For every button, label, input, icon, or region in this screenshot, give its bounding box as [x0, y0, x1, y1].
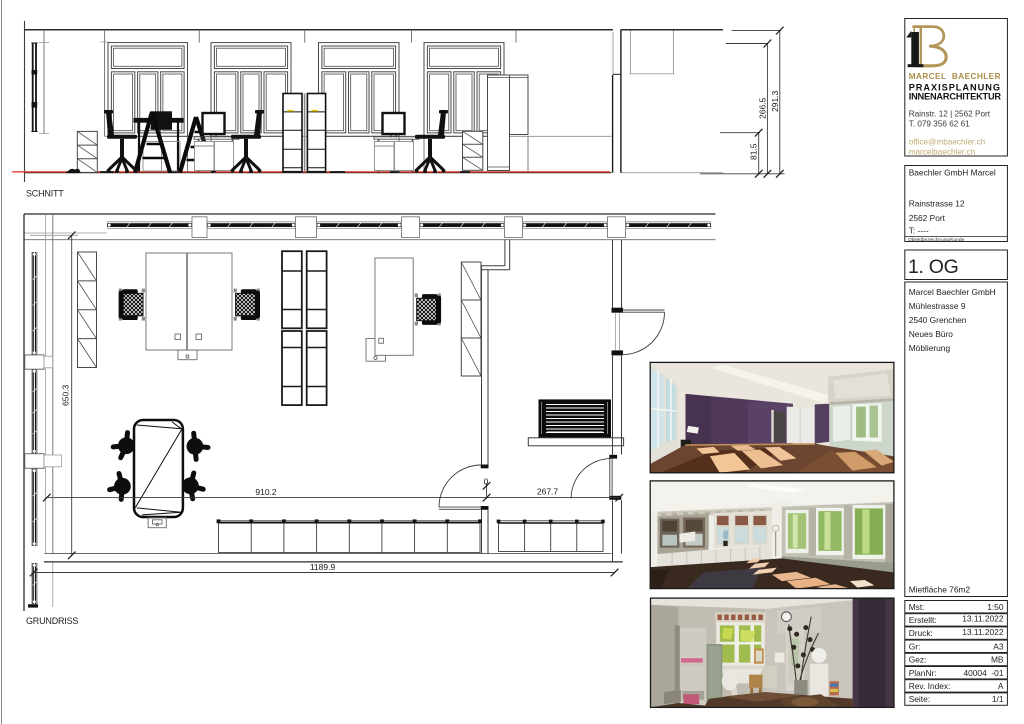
svg-text:MB: MB: [991, 655, 1004, 665]
svg-text:Rainstr. 12 | 2562 Port: Rainstr. 12 | 2562 Port: [909, 110, 991, 119]
svg-text:Objektbezeichnung/Kunde: Objektbezeichnung/Kunde: [908, 237, 965, 243]
svg-text:A: A: [998, 681, 1004, 691]
svg-text:910.2: 910.2: [255, 487, 277, 497]
svg-text:2562 Port: 2562 Port: [909, 213, 946, 223]
svg-text:13.11.2022: 13.11.2022: [962, 614, 1004, 624]
svg-text:1:50: 1:50: [987, 602, 1004, 612]
svg-text:Gr:: Gr:: [909, 641, 921, 651]
svg-text:0: 0: [484, 477, 489, 487]
svg-text:marcelbaechler.ch: marcelbaechler.ch: [909, 147, 976, 156]
svg-text:Möblierung: Möblierung: [909, 343, 951, 353]
svg-text:T. 079 356 62 61: T. 079 356 62 61: [909, 120, 970, 129]
svg-text:Mühlestrasse 9: Mühlestrasse 9: [909, 301, 966, 311]
svg-text:Seite:: Seite:: [909, 694, 930, 704]
svg-text:266.5: 266.5: [757, 97, 767, 119]
svg-text:Marcel Baechler GmbH: Marcel Baechler GmbH: [909, 287, 996, 297]
svg-text:SCHNITT: SCHNITT: [26, 189, 64, 199]
svg-text:Mst:: Mst:: [909, 602, 925, 612]
svg-text:40004 -01: 40004 -01: [963, 668, 1003, 678]
svg-text:Baechler GmbH Marcel: Baechler GmbH Marcel: [909, 168, 996, 178]
svg-text:650.3: 650.3: [61, 384, 71, 406]
svg-text:1. OG: 1. OG: [908, 256, 959, 278]
svg-text:Gez:: Gez:: [909, 655, 927, 665]
svg-text:GRUNDRISS: GRUNDRISS: [26, 616, 78, 626]
svg-text:T: ----: T: ----: [909, 226, 929, 236]
svg-text:Mietfläche 76m2: Mietfläche 76m2: [909, 585, 971, 595]
svg-text:1/1: 1/1: [992, 694, 1004, 704]
svg-text:1189.9: 1189.9: [310, 562, 336, 572]
svg-text:2540 Grenchen: 2540 Grenchen: [909, 315, 967, 325]
svg-text:office@mbaechler.ch: office@mbaechler.ch: [909, 137, 986, 146]
svg-text:MARCEL BAECHLER: MARCEL BAECHLER: [909, 72, 1001, 81]
svg-text:81.5: 81.5: [749, 143, 759, 160]
svg-text:Neues Büro: Neues Büro: [909, 329, 954, 339]
svg-text:Druck:: Druck:: [909, 628, 933, 638]
svg-text:A3: A3: [993, 641, 1004, 651]
svg-text:13.11.2022: 13.11.2022: [962, 627, 1004, 637]
svg-text:PlanNr:: PlanNr:: [909, 668, 937, 678]
svg-text:291.3: 291.3: [770, 90, 780, 112]
svg-text:267.7: 267.7: [537, 487, 559, 497]
svg-text:Rainstrasse 12: Rainstrasse 12: [909, 199, 965, 209]
svg-text:Rev. Index:: Rev. Index:: [909, 681, 951, 691]
svg-text:INNENARCHITEKTUR: INNENARCHITEKTUR: [909, 92, 1002, 102]
svg-text:Erstellt:: Erstellt:: [909, 615, 937, 625]
